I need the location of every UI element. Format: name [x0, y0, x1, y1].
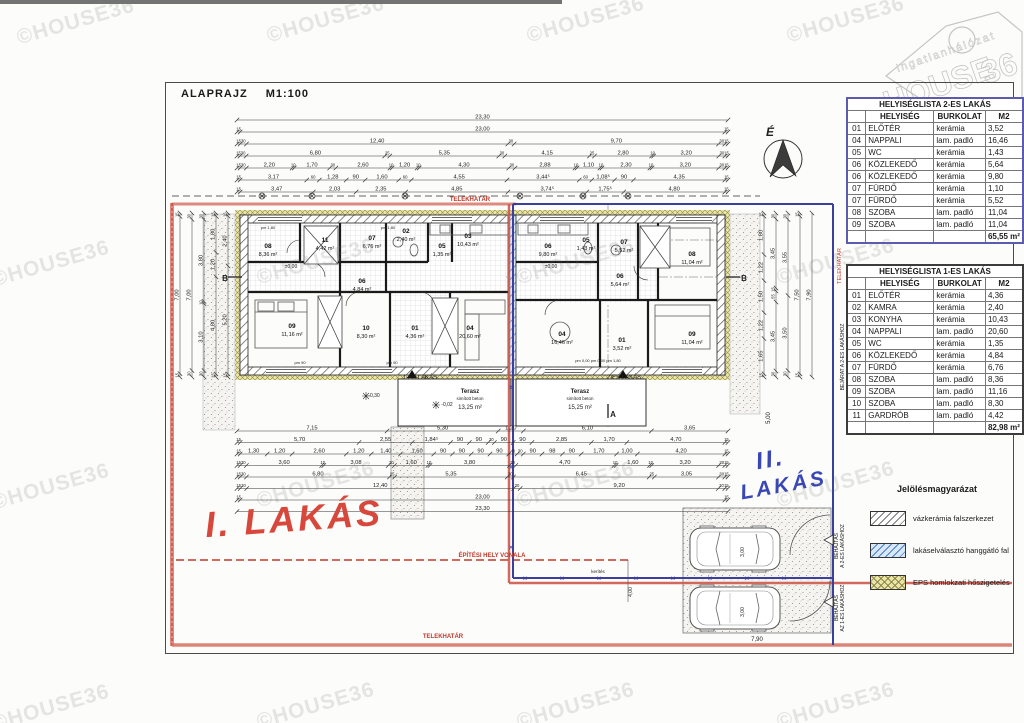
table-row: 01ELŐTÉRkerámia4,36: [847, 290, 1023, 302]
table-row: 06KÖZLEKEDŐkerámia9,80: [847, 171, 1023, 183]
table-row: 08SZOBAlam. padló11,04: [847, 207, 1023, 219]
handwritten-note-1: II.: [754, 444, 787, 477]
legend-title: Jelölésmagyarázat: [858, 484, 1016, 494]
table-row: 07FÜRDŐkerámia6,76: [847, 362, 1023, 374]
table-row: 09SZOBAlam. padló11,16: [847, 386, 1023, 398]
table-total-row: 82,98 m²: [847, 422, 1023, 435]
hatch-yellow-swatch: [870, 575, 906, 590]
table-row: 04NAPPALIlam. padló20,60: [847, 326, 1023, 338]
hatch-blue-swatch: [870, 543, 906, 558]
room-table-1es: HELYISÉGLISTA 1-ES LAKÁSHELYISÉGBURKOLAT…: [846, 264, 1024, 435]
legend: Jelölésmagyarázat vázkerámia falszerkeze…: [858, 484, 1016, 590]
table-row: 11GARDRÓBlam. padló4,42: [847, 410, 1023, 422]
side-text-1: BEHAJTÁSA 2-ES LAKÁSHOZ: [835, 518, 846, 574]
table-row: 07FÜRDŐkerámia5,52: [847, 195, 1023, 207]
table-title: HELYISÉGLISTA 1-ES LAKÁS: [847, 265, 1023, 278]
legend-item-party-wall: lakáselválasztó hanggátló fal: [870, 543, 1016, 558]
table-title: HELYISÉGLISTA 2-ES LAKÁS: [847, 98, 1023, 111]
table-row: 05WCkerámia1,43: [847, 147, 1023, 159]
table-row: 07FÜRDŐkerámia1,10: [847, 183, 1023, 195]
hatch-gray-swatch: [870, 511, 906, 526]
legend-item-eps: EPS homlokzati hőszigetelés: [870, 575, 1016, 590]
page-title: ALAPRAJZ M1:100: [181, 88, 309, 100]
table-row: 06KÖZLEKEDŐkerámia4,84: [847, 350, 1023, 362]
table-row: 10SZOBAlam. padló8,30: [847, 398, 1023, 410]
scan-artifact-bar: [0, 0, 562, 4]
legend-item-wall: vázkerámia falszerkezet: [870, 511, 1016, 526]
table-row: 03KONYHAkerámia10,43: [847, 314, 1023, 326]
table-row: 02KAMRAkerámia2,40: [847, 302, 1023, 314]
table-total-row: 65,55 m²: [847, 231, 1023, 244]
table-row: 05WCkerámia1,35: [847, 338, 1023, 350]
table-row: 06KÖZLEKEDŐkerámia5,64: [847, 159, 1023, 171]
side-text-2: BEHAJTÁSAZ 1-ES LAKÁSHOZ: [835, 578, 846, 638]
table-row: 08SZOBAlam. padló8,36: [847, 374, 1023, 386]
table-row: 04NAPPALIlam. padló16,46: [847, 135, 1023, 147]
room-table-2es: HELYISÉGLISTA 2-ES LAKÁSHELYISÉGBURKOLAT…: [846, 97, 1024, 244]
table-row: 09SZOBAlam. padló11,04: [847, 219, 1023, 231]
table-header: HELYISÉGBURKOLATM2: [847, 111, 1023, 123]
table-row: 01ELŐTÉRkerámia3,52: [847, 123, 1023, 135]
scanned-floorplan-sheet: ALAPRAJZ M1:100: [0, 0, 1024, 723]
table-header: HELYISÉGBURKOLATM2: [847, 278, 1023, 290]
side-text-0: BEJÁRAT A 2-ES LAKÁSHOZ: [841, 282, 847, 432]
